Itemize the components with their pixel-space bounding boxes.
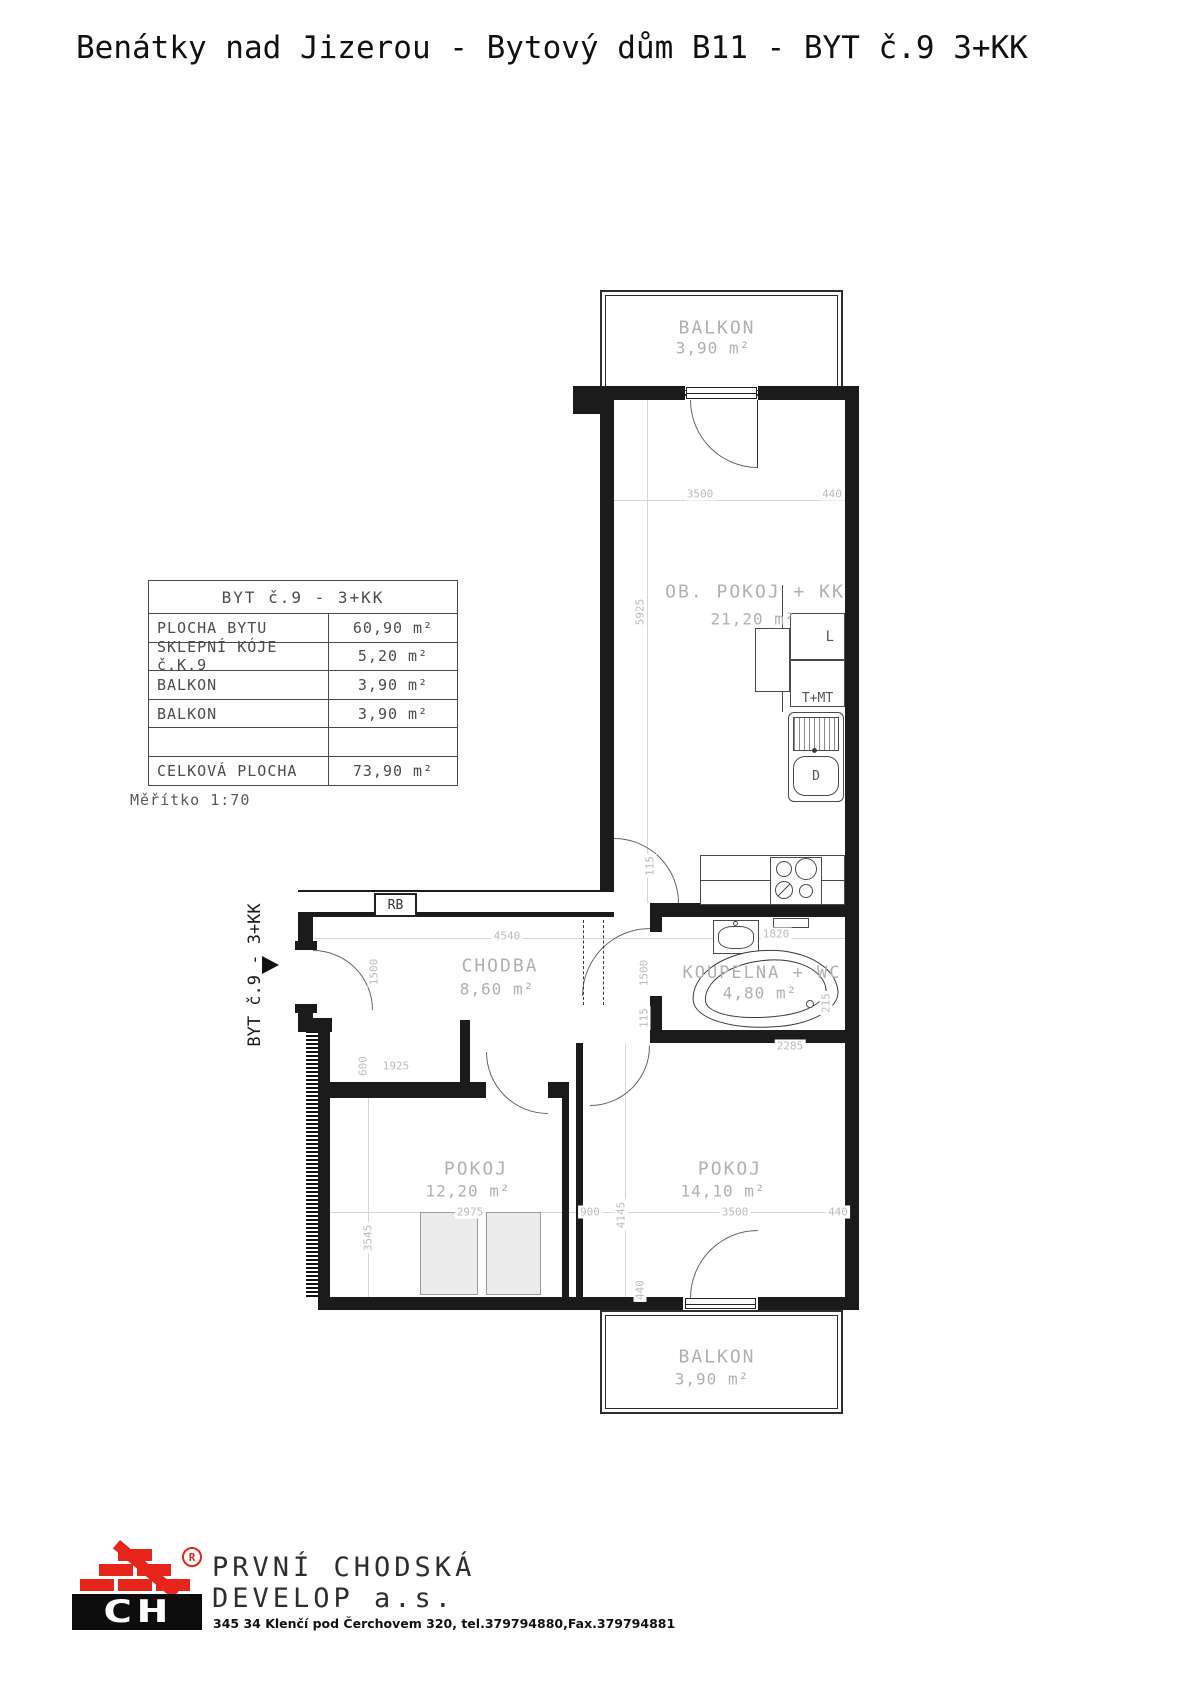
room-label-chodba: CHODBA <box>461 956 538 977</box>
dim-label: 440 <box>820 488 844 501</box>
window-glass-line <box>687 393 756 394</box>
bed <box>486 1212 541 1295</box>
wall-partition <box>576 1043 583 1297</box>
dim-label: 115 <box>638 1006 651 1030</box>
apartment-side-label: BYT č.9 - 3+KK <box>245 895 265 1055</box>
room-label-balkon-bottom: BALKON <box>678 1347 755 1368</box>
sink-label: D <box>812 769 820 784</box>
registered-trademark-icon: R <box>182 1547 202 1567</box>
wall <box>650 903 845 917</box>
logo-brick-icon <box>156 1579 190 1591</box>
room-area-pokoj2: 14,10 m² <box>680 1182 765 1201</box>
wall <box>318 1032 330 1297</box>
dim-label: 440 <box>634 1278 647 1302</box>
logo-monogram: CH <box>102 1594 172 1630</box>
table-cell-value: 3,90 m² <box>329 700 457 728</box>
table-cell-label: SKLEPNÍ KÓJE č.K.9 <box>149 643 329 671</box>
logo-brick-icon <box>137 1564 171 1576</box>
table-cell-label: BALKON <box>149 671 329 699</box>
table-cell-value <box>329 728 457 756</box>
room-label-pokoj2: POKOJ <box>698 1159 762 1180</box>
wall <box>318 1297 683 1310</box>
room-label-koupelna: KOUPELNA + WC <box>682 963 841 983</box>
table-cell-value: 5,20 m² <box>329 643 457 671</box>
dim-label: 600 <box>357 1054 370 1078</box>
room-area-balkon-bottom: 3,90 m² <box>675 1370 749 1389</box>
burner-icon <box>799 884 813 898</box>
page-title: Benátky nad Jizerou - Bytový dům B11 - B… <box>76 30 1028 66</box>
dim-label: 1820 <box>761 928 792 941</box>
dim-label: 1500 <box>638 958 651 989</box>
fridge-label: L <box>826 629 834 645</box>
dim-label: 5925 <box>634 597 647 628</box>
sink-bowl: D <box>793 756 839 796</box>
window-balcony-top <box>686 387 757 399</box>
company-name-line1: PRVNÍ CHODSKÁ <box>212 1552 475 1583</box>
dim-label: 4540 <box>492 930 523 943</box>
logo-brick-icon <box>99 1564 133 1576</box>
dim-label: 4145 <box>615 1200 628 1231</box>
kitchen-cabinet <box>755 628 790 692</box>
dim-label: 2975 <box>455 1206 486 1219</box>
wall <box>298 1018 332 1032</box>
room-label-balkon-top: BALKON <box>678 318 755 339</box>
burner-icon <box>775 881 793 899</box>
washbasin-bowl <box>718 926 754 949</box>
entrance-arrow-icon <box>262 956 279 974</box>
registered-glyph: R <box>189 1551 196 1564</box>
company-address: 345 34 Klenčí pod Čerchovem 320, tel.379… <box>213 1616 675 1631</box>
area-table-header: BYT č.9 - 3+KK <box>149 581 457 614</box>
wall-hatched <box>306 1032 318 1297</box>
logo-brick-icon <box>118 1549 152 1561</box>
radiator <box>773 918 809 928</box>
door-frame <box>295 941 317 950</box>
bathtub-drain-icon <box>806 1000 814 1008</box>
area-table: BYT č.9 - 3+KK PLOCHA BYTU 60,90 m² SKLE… <box>148 580 458 786</box>
sink-drainer <box>793 717 839 751</box>
table-cell-label: BALKON <box>149 700 329 728</box>
oven-label: T+MT <box>802 691 833 706</box>
switchboard-box: RB <box>374 893 417 917</box>
switchboard-label: RB <box>388 898 404 913</box>
door-arc-pokoj2 <box>590 1046 650 1106</box>
fridge-box: L <box>790 613 845 660</box>
scale-note: Měřítko 1:70 <box>130 791 250 809</box>
floor-plan-page: Benátky nad Jizerou - Bytový dům B11 - B… <box>0 0 1190 1684</box>
room-area-pokoj1: 12,20 m² <box>425 1182 510 1201</box>
oven-box: T+MT <box>790 660 845 707</box>
wall <box>548 1082 562 1098</box>
window-balcony-bottom <box>685 1298 756 1309</box>
dim-label: 215 <box>820 991 833 1015</box>
window-glass-line <box>686 1304 755 1305</box>
dim-label: 3500 <box>685 488 716 501</box>
burner-icon <box>776 861 792 877</box>
door-arc-entrance <box>313 950 373 1010</box>
dim-label: 3545 <box>362 1223 375 1254</box>
wall <box>298 890 614 917</box>
table-cell-label: CELKOVÁ PLOCHA <box>149 757 329 786</box>
bed <box>420 1212 478 1295</box>
dim-line <box>368 1098 369 1297</box>
dim-label: 1925 <box>381 1060 412 1073</box>
company-name-line2: DEVELOP a.s. <box>212 1583 455 1614</box>
room-label-pokoj1: POKOJ <box>444 1159 508 1180</box>
dim-label: 3500 <box>720 1206 751 1219</box>
door-arc-balcony-bottom <box>690 1230 758 1298</box>
dashed-line <box>603 920 604 1005</box>
room-area-chodba: 8,60 m² <box>460 980 534 999</box>
dim-label: 2285 <box>775 1040 806 1053</box>
table-cell-label <box>149 728 329 756</box>
table-row: CELKOVÁ PLOCHA 73,90 m² <box>149 757 457 786</box>
wall <box>600 400 614 905</box>
room-area-balkon-top: 3,90 m² <box>676 339 750 358</box>
room-label-obyvaci: OB. POKOJ + KK <box>665 582 845 603</box>
table-cell-value: 3,90 m² <box>329 671 457 699</box>
dim-line <box>647 400 648 903</box>
faucet-icon <box>812 748 817 753</box>
door-arc-balcony-top <box>690 400 758 468</box>
logo-brick-icon <box>118 1579 152 1591</box>
faucet-icon <box>733 921 738 926</box>
wall <box>845 386 859 1310</box>
dim-label: 440 <box>826 1206 850 1219</box>
logo-monogram-box: CH <box>72 1594 202 1630</box>
dim-label: 900 <box>578 1206 602 1219</box>
wall <box>758 386 859 400</box>
room-area-koupelna: 4,80 m² <box>723 984 797 1003</box>
door-leaf <box>757 400 758 468</box>
wall <box>650 917 662 932</box>
dim-label: 115 <box>644 854 657 878</box>
table-cell-value: 60,90 m² <box>329 614 457 642</box>
wall <box>650 1030 859 1043</box>
table-row <box>149 728 457 757</box>
burner-icon <box>795 858 817 880</box>
wall <box>758 1297 859 1310</box>
dim-line <box>614 500 845 501</box>
door-arc-pokoj1 <box>486 1052 548 1114</box>
table-cell-value: 73,90 m² <box>329 757 457 786</box>
logo-brick-icon <box>80 1579 114 1591</box>
room-area-obyvaci: 21,20 m² <box>710 610 795 629</box>
table-row: SKLEPNÍ KÓJE č.K.9 5,20 m² <box>149 643 457 672</box>
wall <box>573 386 685 400</box>
table-row: BALKON 3,90 m² <box>149 671 457 700</box>
wall-partition <box>562 1082 569 1297</box>
dashed-line <box>583 920 584 1005</box>
table-row: BALKON 3,90 m² <box>149 700 457 729</box>
wall <box>318 1082 486 1098</box>
dim-label: 1500 <box>368 957 381 988</box>
wall <box>460 1020 470 1082</box>
